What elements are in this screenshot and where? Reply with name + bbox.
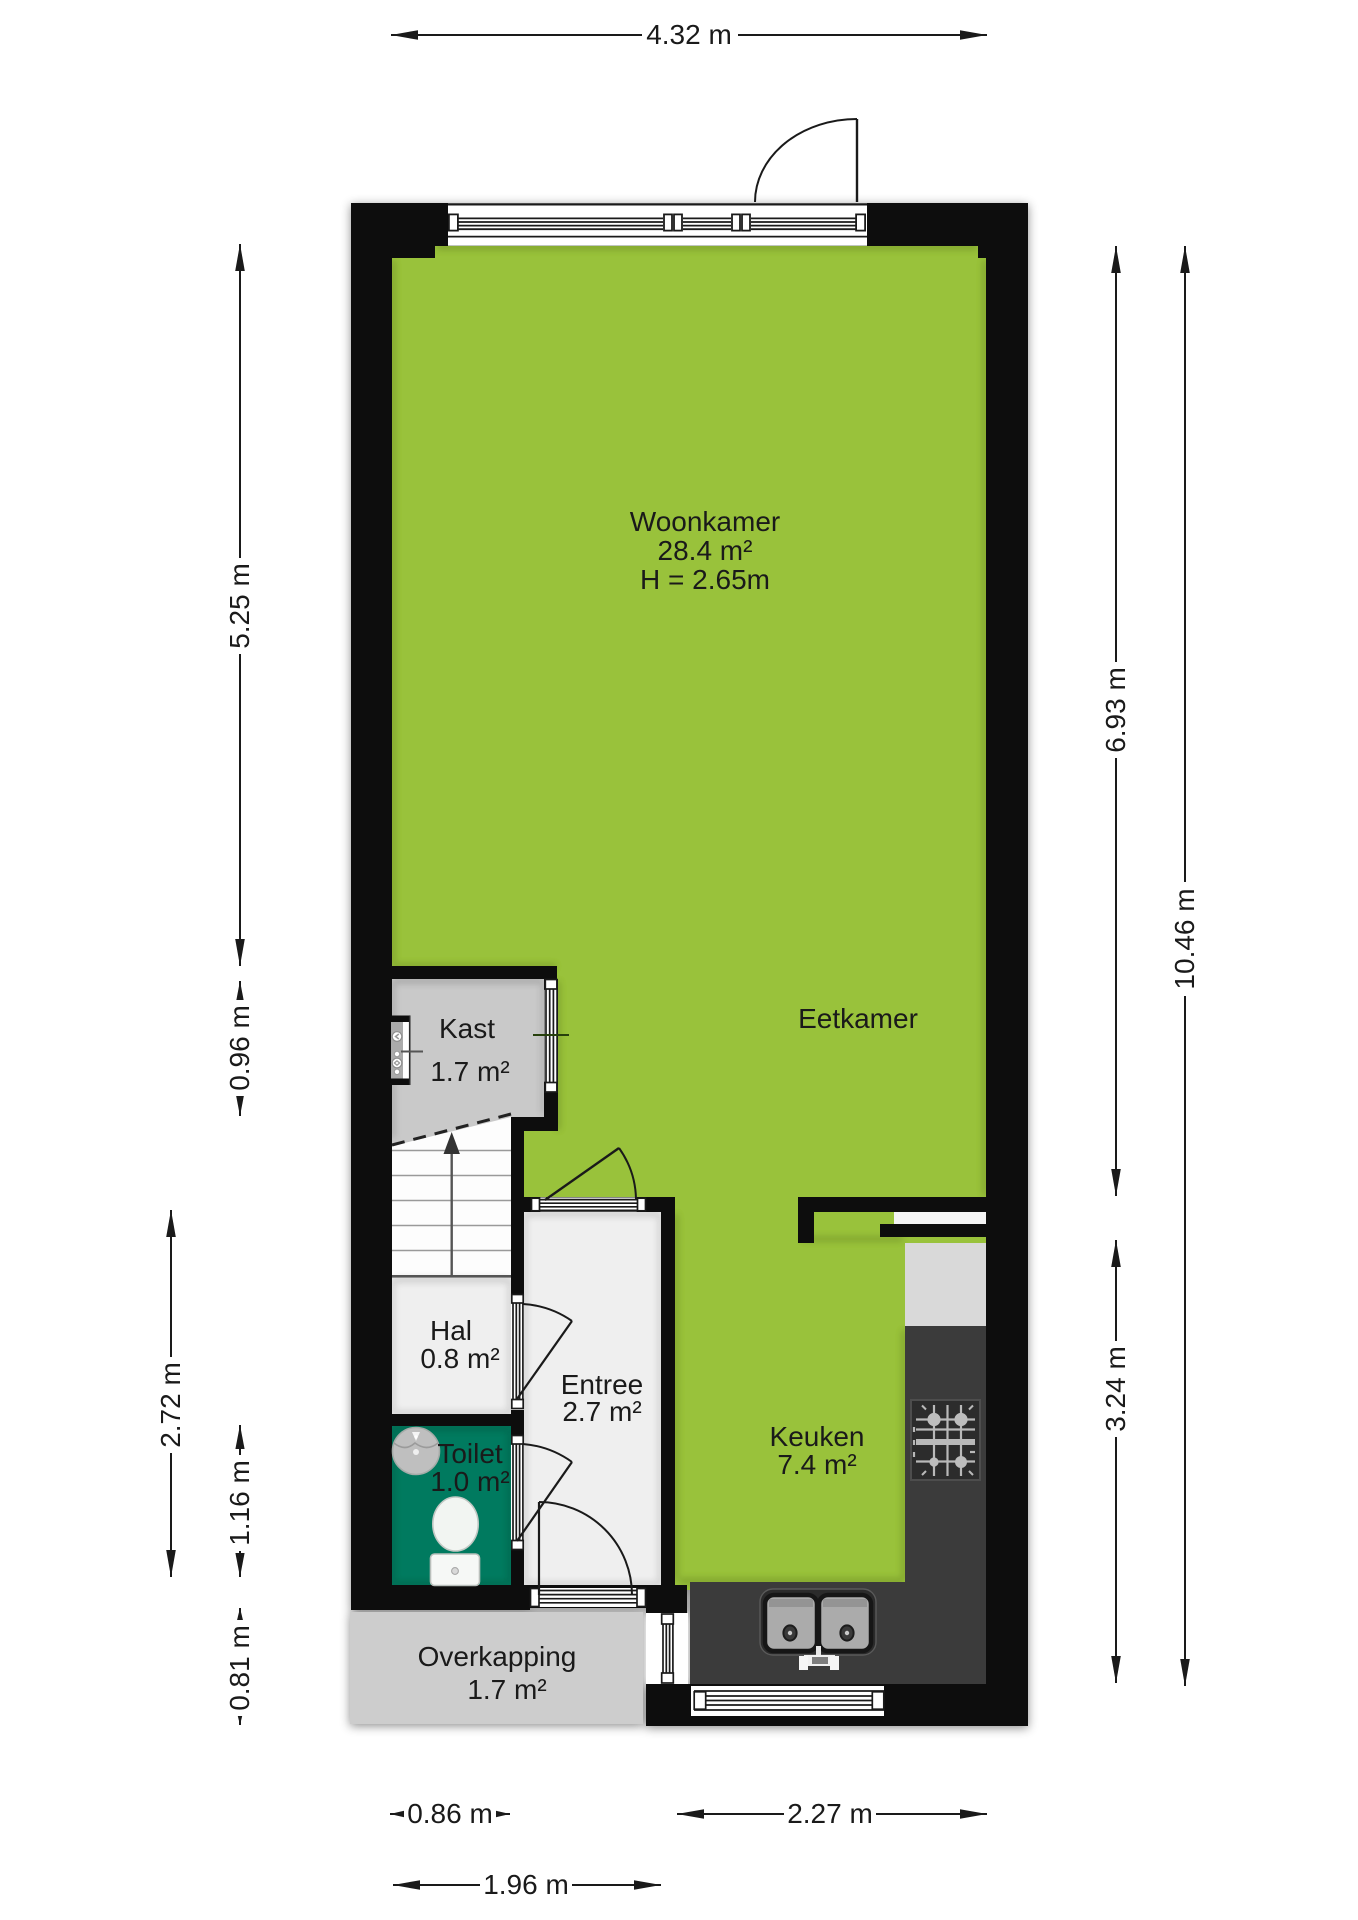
svg-text:0.8 m²: 0.8 m² (420, 1343, 499, 1374)
svg-text:Kast: Kast (439, 1013, 495, 1044)
svg-text:Eetkamer: Eetkamer (798, 1003, 918, 1034)
svg-text:Toilet: Toilet (437, 1438, 503, 1469)
svg-text:2.7 m²: 2.7 m² (562, 1396, 641, 1427)
svg-text:1.7 m²: 1.7 m² (430, 1056, 509, 1087)
svg-text:2.72 m: 2.72 m (155, 1362, 186, 1448)
svg-text:1.16 m: 1.16 m (224, 1460, 255, 1546)
svg-text:3.24 m: 3.24 m (1100, 1346, 1131, 1432)
svg-text:0.81 m: 0.81 m (224, 1625, 255, 1711)
svg-text:1.7 m²: 1.7 m² (467, 1674, 546, 1705)
svg-text:1.96 m: 1.96 m (483, 1869, 569, 1900)
svg-text:5.25 m: 5.25 m (224, 563, 255, 649)
svg-text:2.27 m: 2.27 m (787, 1798, 873, 1829)
svg-text:Hal: Hal (430, 1315, 472, 1346)
svg-text:1.0 m²: 1.0 m² (430, 1466, 509, 1497)
svg-text:Overkapping: Overkapping (418, 1641, 577, 1672)
svg-text:H = 2.65m: H = 2.65m (640, 564, 770, 595)
svg-text:Woonkamer: Woonkamer (630, 506, 780, 537)
svg-text:7.4 m²: 7.4 m² (777, 1449, 856, 1480)
svg-text:0.86 m: 0.86 m (407, 1798, 493, 1829)
svg-text:4.32 m: 4.32 m (646, 19, 732, 50)
svg-text:6.93 m: 6.93 m (1100, 667, 1131, 753)
svg-text:28.4 m²: 28.4 m² (658, 535, 753, 566)
svg-text:10.46 m: 10.46 m (1169, 888, 1200, 989)
svg-text:Keuken: Keuken (770, 1421, 865, 1452)
svg-text:0.96 m: 0.96 m (224, 1005, 255, 1091)
